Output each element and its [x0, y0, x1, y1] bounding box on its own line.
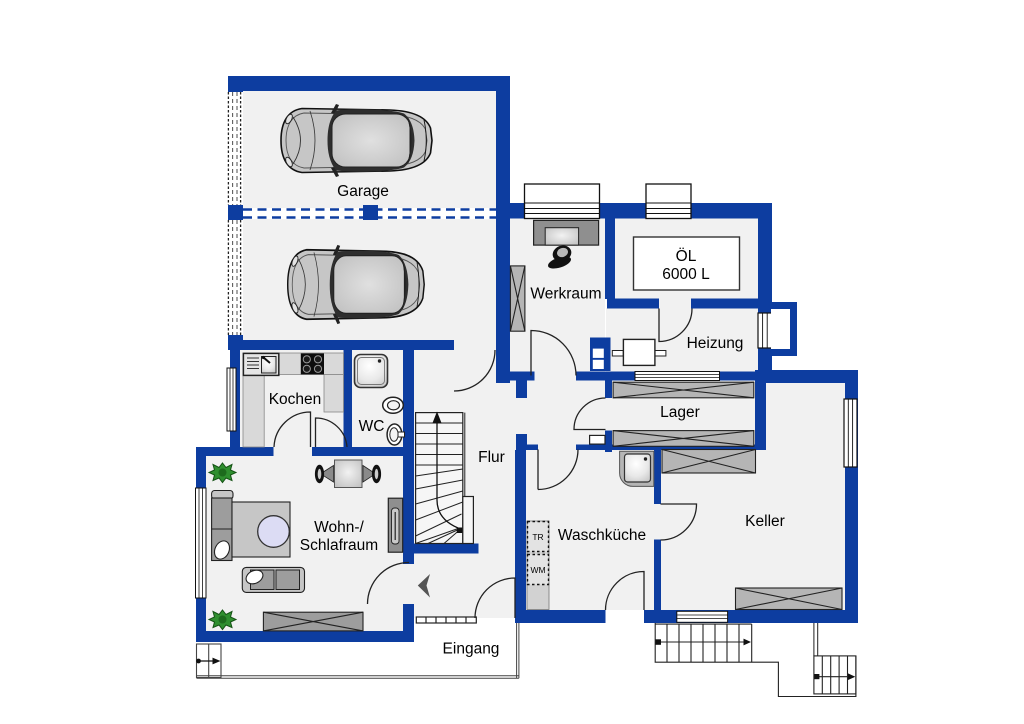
svg-text:Flur: Flur: [478, 449, 505, 466]
svg-text:Schlafraum: Schlafraum: [300, 537, 378, 554]
svg-text:Waschküche: Waschküche: [558, 527, 646, 544]
svg-text:WC: WC: [359, 418, 385, 435]
svg-text:Lager: Lager: [660, 404, 700, 421]
svg-text:Heizung: Heizung: [687, 335, 744, 352]
svg-text:Wohn-/: Wohn-/: [314, 519, 364, 536]
svg-text:Kochen: Kochen: [269, 391, 322, 408]
svg-text:ÖL: ÖL: [676, 247, 697, 265]
svg-text:Werkraum: Werkraum: [530, 286, 601, 303]
svg-text:6000 L: 6000 L: [662, 266, 710, 283]
svg-text:Eingang: Eingang: [443, 641, 500, 658]
svg-text:TR: TR: [532, 532, 543, 542]
svg-text:WM: WM: [530, 565, 545, 575]
svg-text:Garage: Garage: [337, 183, 389, 200]
svg-text:Keller: Keller: [745, 513, 785, 530]
